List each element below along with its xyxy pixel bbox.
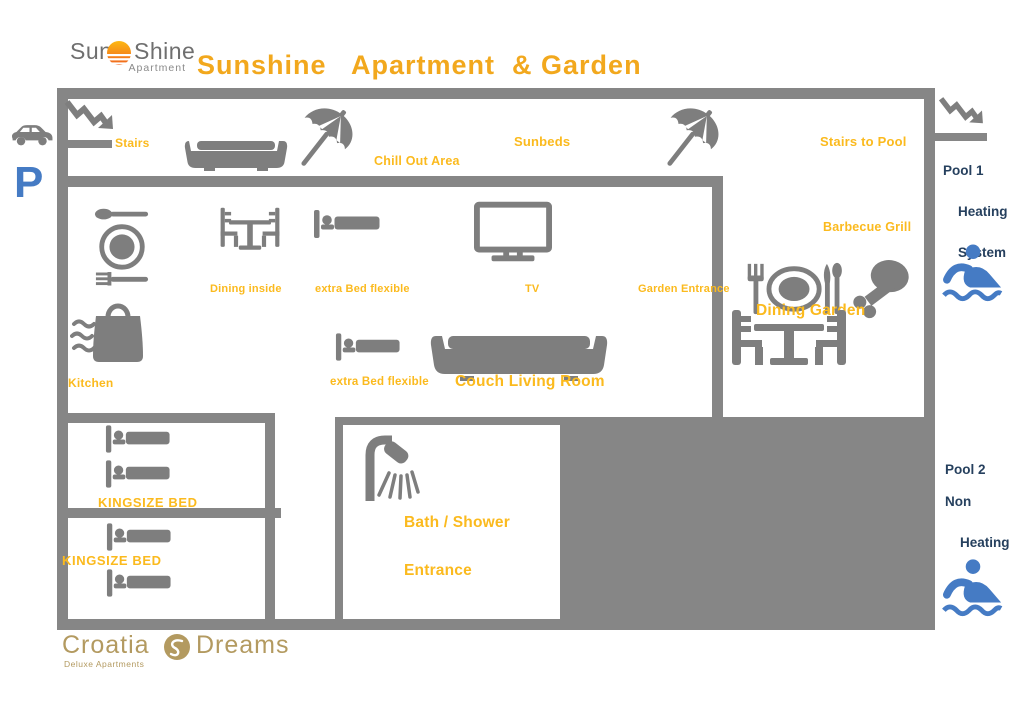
bed-icon	[312, 209, 382, 239]
pool1-line1: Pool 1	[943, 163, 984, 178]
stairs-down-icon	[64, 99, 116, 143]
entrance-label: Entrance	[404, 562, 472, 580]
logo-text-shine: Shine	[134, 38, 195, 65]
sunbeds-label: Sunbeds	[514, 134, 570, 149]
bed-icon	[105, 568, 173, 598]
bed-icon	[105, 522, 173, 552]
garden-entrance-label: Garden Entrance	[638, 283, 730, 295]
parking-label: P	[14, 158, 43, 208]
wall-outer-left	[57, 88, 68, 630]
brand-dreams: Dreams	[196, 631, 290, 660]
pool2-name: Pool 2	[945, 460, 986, 481]
wall-garden-divider	[712, 176, 723, 421]
pool2-line2: Non	[945, 494, 971, 509]
car-icon	[8, 117, 54, 150]
pool2-heading: Non Heating	[945, 492, 1010, 554]
tv-label: TV	[525, 283, 539, 295]
kingsize-bed-label: KINGSIZE BED	[62, 553, 162, 568]
bath-shower-label: Bath / Shower	[404, 514, 510, 532]
bed-icon	[334, 332, 402, 362]
stairs-to-pool-label: Stairs to Pool	[820, 134, 907, 149]
logo-subtitle: Apartment	[124, 62, 186, 74]
kitchen-label: Kitchen	[68, 376, 113, 390]
wall-bedroom-top	[57, 413, 275, 423]
dining-table-icon	[215, 206, 285, 257]
swimmer-icon	[941, 243, 1005, 303]
page-title: Sunshine Apartment & Garden	[197, 50, 642, 81]
dining-inside-label: Dining inside	[210, 283, 282, 295]
extra-bed-label: extra Bed flexible	[330, 376, 429, 388]
bed-icon	[104, 459, 172, 489]
garden-table-icon	[726, 310, 852, 370]
wall-terrace-divider	[57, 176, 723, 187]
kitchen-bag-icon	[70, 299, 148, 367]
stairs-label: Stairs	[115, 136, 150, 150]
stairs-down-icon	[936, 96, 988, 136]
sunbed-couch-icon	[184, 140, 288, 171]
brand-croatia: Croatia	[62, 631, 150, 660]
floor-plan: Sun Shine Apartment Sunshine Apartment &…	[0, 0, 1024, 705]
barbecue-grill-label: Barbecue Grill	[823, 220, 911, 234]
shower-icon	[363, 433, 427, 503]
plate-cutlery-icon	[94, 202, 150, 288]
bed-icon	[104, 424, 172, 454]
pool1-line2: Heating	[958, 204, 1008, 219]
couch-living-room-label: Couch Living Room	[455, 373, 605, 391]
tv-icon	[474, 201, 552, 263]
umbrella-icon	[293, 104, 363, 176]
kingsize-bed-label: KINGSIZE BED	[98, 495, 198, 510]
pool2-line3: Heating	[960, 535, 1010, 550]
umbrella-icon	[659, 104, 729, 176]
wall-outer-top	[57, 88, 935, 99]
swimmer-icon	[941, 557, 1005, 619]
croatia-dreams-icon	[163, 633, 191, 661]
wall-bedroom-right	[265, 413, 275, 630]
chill-out-label: Chill Out Area	[374, 154, 460, 168]
brand-subtitle: Deluxe Apartments	[64, 659, 144, 669]
extra-bed-label: extra Bed flexible	[315, 283, 410, 295]
